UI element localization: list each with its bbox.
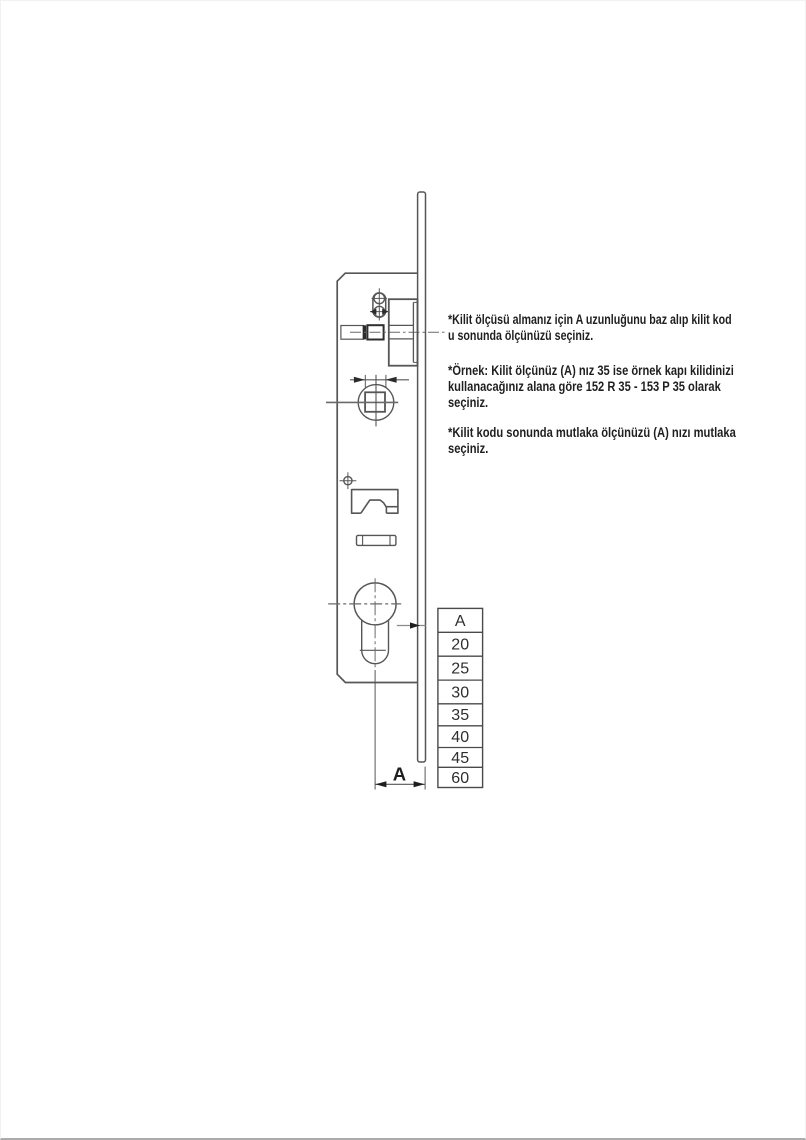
svg-text:A: A [455,613,466,630]
svg-text:A: A [393,763,406,784]
svg-text:20: 20 [451,637,469,654]
svg-text:30: 30 [451,684,469,701]
svg-text:60: 60 [451,770,469,787]
svg-text:40: 40 [451,729,469,746]
svg-text:25: 25 [451,661,469,678]
svg-text:35: 35 [451,707,469,724]
svg-text:45: 45 [451,750,469,767]
